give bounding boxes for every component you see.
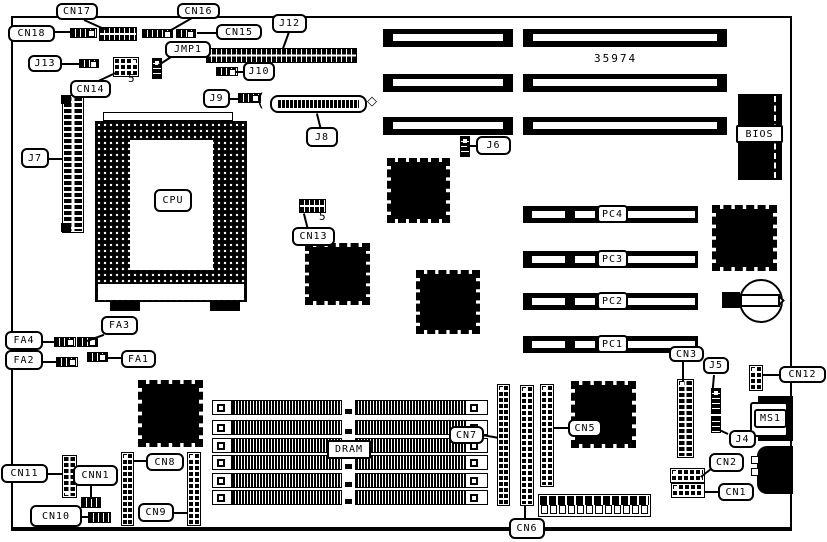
pci-slot-pc3: PC3 [523,251,698,268]
cn3-label: CN3 [669,346,704,362]
jumper-cn10 [88,512,111,523]
isa-slot-2-left [383,74,513,92]
j9-label: J9 [203,89,230,108]
fa3-label: FA3 [101,316,138,335]
asic-chip-right [712,205,777,271]
asic-chip-mid-right [416,270,480,334]
j6-label: J6 [476,136,511,155]
part-number: 35974 [594,52,637,65]
cn14-label: CN14 [70,80,111,98]
connector-cn1 [671,483,705,498]
connector-j7 [62,95,84,233]
power-connector [538,494,651,517]
cn14-pin5: 5 [128,72,137,85]
j10-label: J10 [243,62,275,81]
pci-slot-pc2: PC2 [523,293,698,310]
cn11-leader [46,473,63,475]
cn2-label: CN2 [709,453,744,472]
cn15-label: CN15 [216,24,262,40]
isa-slot-1-right [523,29,727,47]
cn9-leader [172,512,188,514]
jumper-j5 [711,388,721,414]
asic-chip-bottom-left [138,380,203,447]
j8-diamond-icon: ◇ [367,94,377,109]
connector-j10 [216,67,238,76]
cn10-leader [81,516,90,518]
j7-bottom-tab [61,223,71,232]
connector-cn18 [70,28,97,38]
pc4-label: PC4 [597,205,628,223]
cn1-label: CN1 [718,483,754,501]
connector-cn8 [121,452,134,526]
cn13-label: CN13 [292,227,335,246]
asic-chip-mid-left [305,243,370,305]
isa-slot-3-left [383,117,513,135]
pci-slot-pc4: PC4 [523,206,698,223]
cn11-label: CN11 [1,464,48,483]
fa4-leader [41,341,55,343]
asic-chip-cn5 [571,381,636,448]
cn12-label: CN12 [779,366,826,383]
cn17-label: CN17 [56,3,98,20]
j13-leader [59,63,80,65]
cpu-label: CPU [154,189,192,212]
cn7-label: CN7 [449,426,484,444]
cpu-socket-bar [98,284,244,300]
isa-slot-1-left [383,29,513,47]
power-connector-cells [541,505,648,514]
j8-bracket-icon: ( [257,90,264,111]
fa2-label: FA2 [5,350,43,370]
bios-label: BIOS [736,125,783,143]
j4-label: J4 [729,430,756,448]
pc1-label: PC1 [597,335,628,353]
isa-slot-2-right [523,74,727,92]
j7-label: J7 [21,148,49,168]
pc2-label: PC2 [597,292,628,310]
ms1-label: MS1 [754,409,787,428]
power-connector-pins [540,496,649,505]
cn9-label: CN9 [138,503,174,522]
cnn1-label: CNN1 [73,465,118,486]
j8-label: J8 [306,127,338,147]
battery-holder [722,292,740,308]
connector-j8 [270,95,367,113]
fa4-label: FA4 [5,331,43,350]
jumper-fa4 [54,337,76,347]
isa-slot-3-right [523,117,727,135]
fa1-label: FA1 [121,350,156,368]
keyboard-port-notch-1 [751,456,759,464]
cn15-leader [197,32,218,34]
connector-cn15 [176,29,196,38]
connector-j13 [79,59,99,68]
keyboard-port-notch-2 [751,468,759,476]
cnn1-leader [90,486,92,499]
cn13-pin5: 5 [319,210,328,223]
pc3-label: PC3 [597,250,628,268]
simm-socket-6 [212,490,488,505]
connector-cn12 [749,365,763,391]
cpu-socket-handle [103,112,233,121]
connector-j12-header [206,48,357,63]
connector-cn5 [540,384,554,487]
dram-label: DRAM [327,440,371,459]
cn3-leader [682,361,684,381]
j8-pins [278,100,359,108]
connector-cn16 [142,29,173,38]
asic-chip-top [387,158,450,223]
j12-label: J12 [272,14,307,33]
simm-socket-5 [212,473,488,488]
cn6-label: CN6 [509,518,545,539]
simm-socket-2 [212,420,488,435]
j5-label: J5 [703,357,729,374]
j13-label: J13 [28,55,62,72]
jmp1-label: JMP1 [165,41,211,58]
motherboard-diagram: ( ◇ CPU 35974 BIOS PC4 PC3 PC2 [0,0,827,542]
jumper-fa2 [56,357,78,367]
cn18-leader [52,31,72,33]
keyboard-port [757,446,793,494]
cn8-label: CN8 [146,453,184,471]
cn10-label: CN10 [30,505,82,527]
cn5-label: CN5 [568,419,602,437]
connector-cn9 [187,452,201,526]
simm-socket-1 [212,400,488,415]
cpu-foot-right [210,302,240,311]
connector-cn6 [520,385,534,506]
cn16-label: CN16 [177,3,220,19]
connector-cn7 [497,384,510,506]
fa2-leader [41,361,57,363]
cpu-foot-left [110,302,140,311]
jumper-fa1 [87,352,108,362]
j7-top-tab [61,95,71,104]
cn18-label: CN18 [8,25,55,42]
connector-cn3 [677,379,694,458]
battery-clip [740,294,780,307]
